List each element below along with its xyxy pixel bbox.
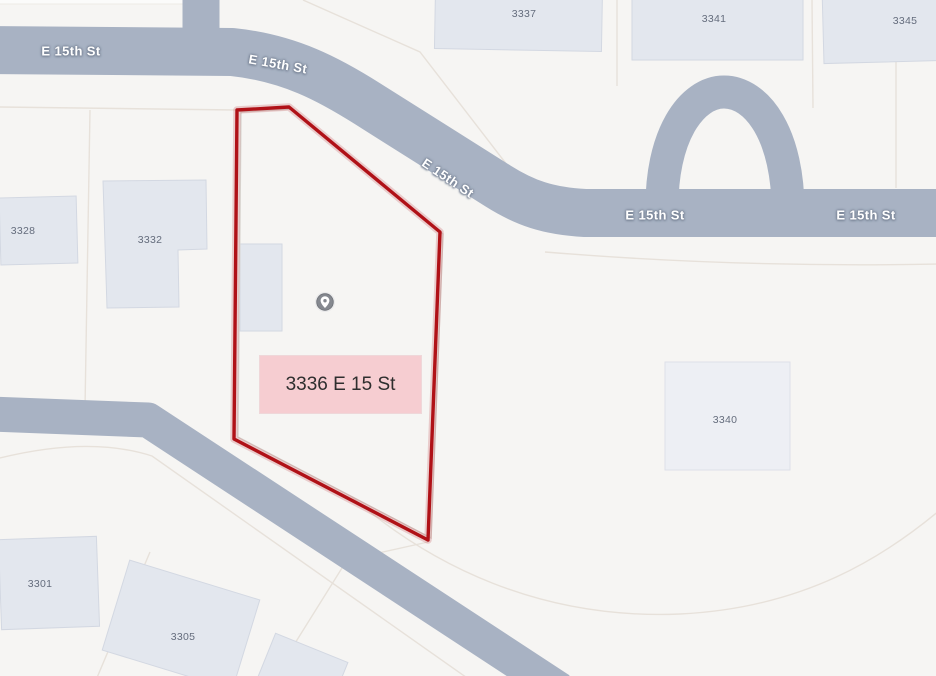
building-topleft-partial xyxy=(0,0,186,4)
parcel-map-canvas[interactable]: E 15th St E 15th St E 15th St E 15th St … xyxy=(0,0,936,676)
parcel-number-3345: 3345 xyxy=(893,15,918,27)
buildings xyxy=(0,0,936,676)
parcel-number-3301: 3301 xyxy=(28,578,53,590)
selected-parcel-address-label: 3336 E 15 St xyxy=(260,356,421,413)
parcel-number-3328: 3328 xyxy=(11,225,36,237)
map-marker-icon[interactable] xyxy=(315,292,335,312)
building-3305 xyxy=(102,560,260,676)
building-bottom-partial xyxy=(256,633,348,676)
map-layer xyxy=(0,0,936,676)
parcel-number-3341: 3341 xyxy=(702,13,727,25)
parcel-number-3337: 3337 xyxy=(512,8,537,20)
building-in-parcel xyxy=(240,244,282,331)
parcel-number-3340: 3340 xyxy=(713,414,738,426)
building-3345 xyxy=(822,0,936,64)
parcel-number-3305: 3305 xyxy=(171,631,196,643)
parcel-number-3332: 3332 xyxy=(138,234,163,246)
building-3341 xyxy=(632,0,803,60)
